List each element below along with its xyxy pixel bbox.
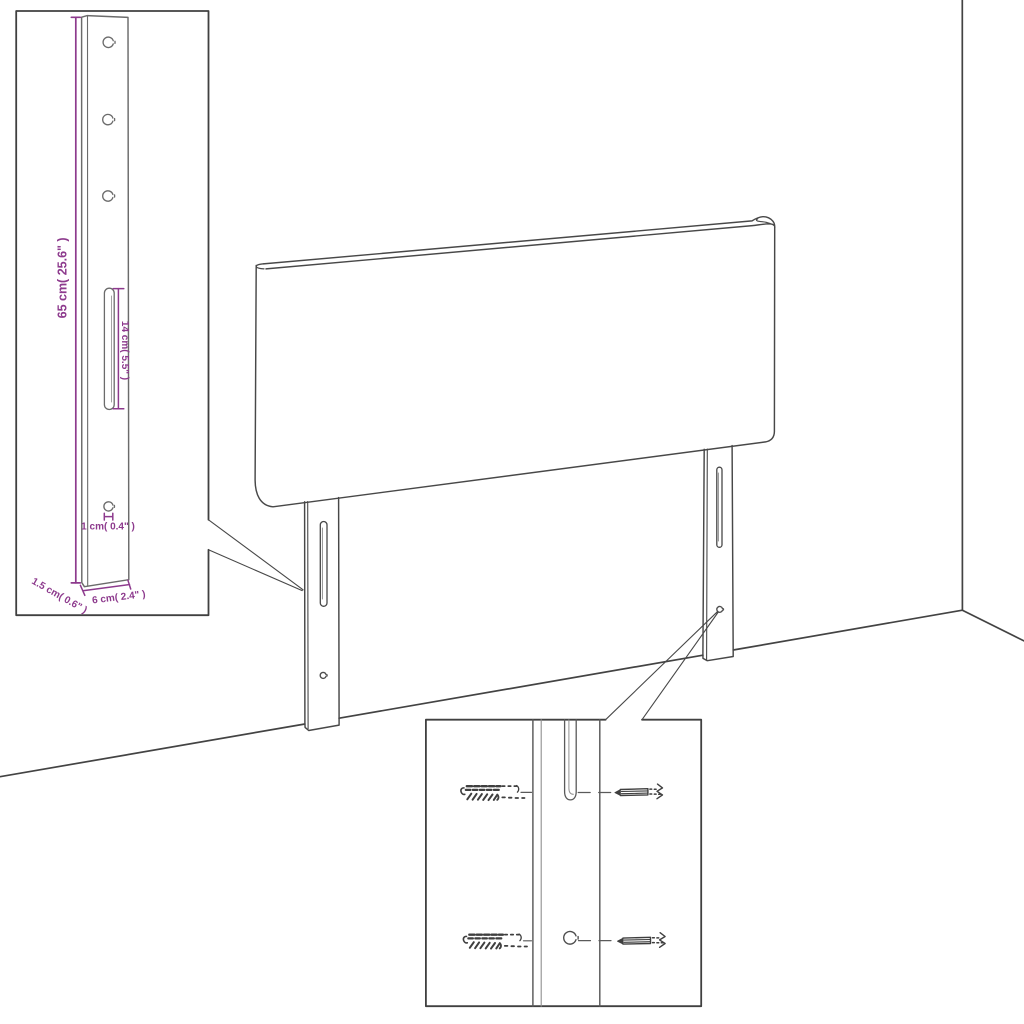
svg-text:1 cm( 0.4" ): 1 cm( 0.4" ) (81, 521, 135, 532)
svg-text:65 cm( 25.6" ): 65 cm( 25.6" ) (56, 237, 70, 318)
svg-text:14 cm( 5.5" ): 14 cm( 5.5" ) (119, 321, 130, 380)
